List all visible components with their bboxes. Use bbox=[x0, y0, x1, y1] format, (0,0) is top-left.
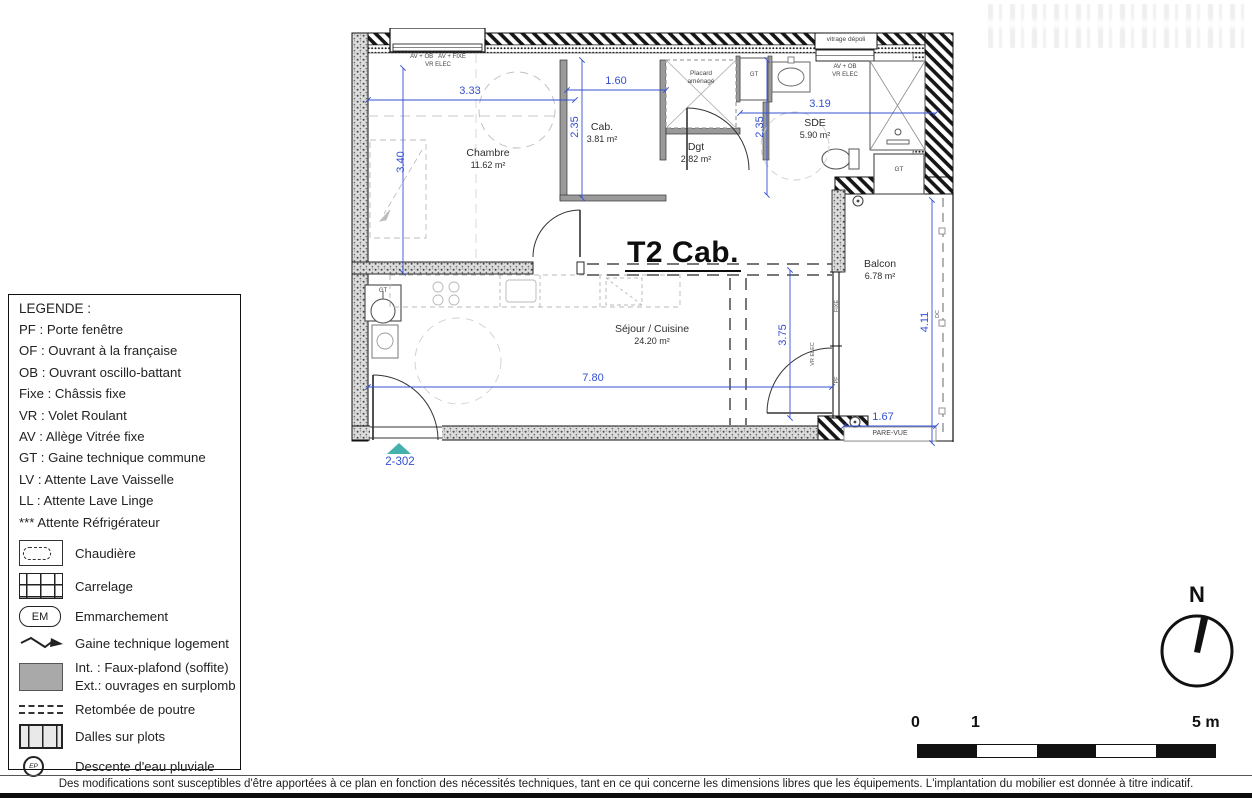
legend-item-chaudiere: Chaudière bbox=[19, 540, 240, 566]
dalles-icon bbox=[19, 724, 63, 749]
legend-item-descente-eau: EP Descente d'eau pluviale bbox=[19, 756, 240, 777]
legend-box: LEGENDE : PF : Porte fenêtre OF : Ouvran… bbox=[8, 294, 241, 770]
floor-plan-sheet: LEGENDE : PF : Porte fenêtre OF : Ouvran… bbox=[0, 0, 1252, 800]
room-label-sejour: Séjour / Cuisine 24.20 m² bbox=[607, 324, 697, 346]
vitrage-depoli-label: vitrage dépoli bbox=[816, 36, 876, 44]
scale-tick-5m: 5 m bbox=[1192, 714, 1220, 732]
window-label-chambre: AV + OB AV + FIXE VR ELEC bbox=[392, 54, 484, 69]
dim-sejour-height: 3.75 bbox=[777, 313, 789, 357]
legend-abbrev-refrigerateur: *** Attente Réfrigérateur bbox=[19, 512, 240, 533]
pare-vue-label: PARE-VUE bbox=[846, 430, 934, 439]
dim-sejour-width: 7.80 bbox=[568, 372, 618, 384]
legend-label-emmarchement: Emmarchement bbox=[75, 609, 168, 624]
gt-label-sde: GT bbox=[874, 166, 924, 174]
entry-marker-icon bbox=[387, 443, 411, 454]
room-label-dgt: Dgt 2.82 m² bbox=[668, 142, 724, 164]
scale-tick-0: 0 bbox=[911, 714, 920, 732]
dim-chambre-height: 3.40 bbox=[395, 140, 407, 184]
legend-abbrev-vr: VR : Volet Roulant bbox=[19, 405, 240, 426]
legend-abbrev-ob: OB : Ouvrant oscillo-battant bbox=[19, 362, 240, 383]
gt-label-sejour: GT bbox=[366, 288, 400, 296]
legend-item-emmarchement: EM Emmarchement bbox=[19, 606, 240, 627]
vr-elec-label-right: VR ELEC bbox=[810, 337, 816, 371]
unit-number: 2-302 bbox=[373, 456, 427, 468]
north-arrow: N bbox=[1155, 582, 1239, 695]
scale-bar: 0 1 5 m bbox=[905, 714, 1235, 764]
faux-plafond-icon bbox=[19, 663, 63, 691]
disclaimer-bar: Des modifications sont susceptibles d'êt… bbox=[0, 775, 1252, 798]
legend-label-chaudiere: Chaudière bbox=[75, 546, 136, 561]
scale-tick-1: 1 bbox=[971, 714, 980, 732]
room-label-balcon: Balcon 6.78 m² bbox=[850, 259, 910, 281]
legend-item-faux-plafond: Int. : Faux-plafond (soffite) Ext.: ouvr… bbox=[19, 659, 240, 695]
scale-bar-segments bbox=[917, 744, 1216, 758]
pf-label: PF bbox=[834, 365, 840, 395]
legend-abbrev-fixe: Fixe : Châssis fixe bbox=[19, 383, 240, 404]
legend-abbrev-gt: GT : Gaine technique commune bbox=[19, 447, 240, 468]
legend-label-gaine: Gaine technique logement bbox=[75, 636, 229, 651]
legend-item-gaine: Gaine technique logement bbox=[19, 634, 240, 652]
legend-label-retombee: Retombée de poutre bbox=[75, 702, 195, 717]
legend-label-faux-plafond-int: Int. : Faux-plafond (soffite) bbox=[75, 660, 229, 675]
dim-balcon-height: 4.11 bbox=[919, 300, 931, 344]
dim-cab-height: 2.35 bbox=[569, 105, 581, 149]
dim-balcon-width: 1.67 bbox=[858, 411, 908, 423]
footer-bottom-rule bbox=[0, 793, 1252, 798]
legend-item-retombee: Retombée de poutre bbox=[19, 702, 240, 717]
legend-item-carrelage: Carrelage bbox=[19, 573, 240, 599]
window-label-sde: AV + OBVR ELEC bbox=[816, 64, 874, 79]
descente-eau-icon: EP bbox=[23, 756, 44, 777]
dim-sde-height: 2.35 bbox=[754, 105, 766, 149]
dim-cab-width: 1.60 bbox=[591, 75, 641, 87]
dim-sde-width: 3.19 bbox=[795, 98, 845, 110]
legend-label-carrelage: Carrelage bbox=[75, 579, 133, 594]
retombee-poutre-icon bbox=[19, 705, 63, 714]
room-label-sde: SDE 5.90 m² bbox=[790, 118, 840, 140]
legend-abbrev-pf: PF : Porte fenêtre bbox=[19, 319, 240, 340]
legend-label-faux-plafond-ext: Ext.: ouvrages en surplomb bbox=[75, 678, 236, 693]
disclaimer-text: Des modifications sont susceptibles d'êt… bbox=[0, 776, 1252, 793]
chaudiere-icon bbox=[19, 540, 63, 566]
carrelage-icon bbox=[19, 573, 63, 599]
legend-label-descente-eau: Descente d'eau pluviale bbox=[75, 759, 215, 774]
fixe-label: FIXE bbox=[834, 289, 840, 323]
room-label-chambre: Chambre 11.62 m² bbox=[453, 148, 523, 170]
dc-label: DC bbox=[935, 299, 941, 329]
north-compass-icon bbox=[1155, 608, 1239, 690]
gt-label-top: GT bbox=[740, 72, 768, 80]
dim-chambre-width: 3.33 bbox=[445, 85, 495, 97]
apartment-plan: T2 Cab. Chambre 11.62 m² Cab. 3.81 m² Dg… bbox=[350, 28, 958, 474]
room-label-cab: Cab. 3.81 m² bbox=[577, 122, 627, 144]
north-label: N bbox=[1155, 582, 1239, 608]
plan-title: T2 Cab. bbox=[608, 236, 758, 270]
legend-abbrev-of: OF : Ouvrant à la française bbox=[19, 340, 240, 361]
legend-abbrev-av: AV : Allège Vitrée fixe bbox=[19, 426, 240, 447]
legend-abbrev-lv: LV : Attente Lave Vaisselle bbox=[19, 469, 240, 490]
legend-label-dalles: Dalles sur plots bbox=[75, 729, 165, 744]
legend-item-dalles: Dalles sur plots bbox=[19, 724, 240, 749]
legend-title: LEGENDE : bbox=[19, 301, 240, 316]
gaine-technique-icon bbox=[19, 634, 65, 652]
emmarchement-icon: EM bbox=[19, 606, 61, 627]
faint-watermark bbox=[988, 4, 1250, 48]
legend-abbrev-ll: LL : Attente Lave Linge bbox=[19, 490, 240, 511]
placard-label: Placardaménagé bbox=[670, 70, 732, 86]
